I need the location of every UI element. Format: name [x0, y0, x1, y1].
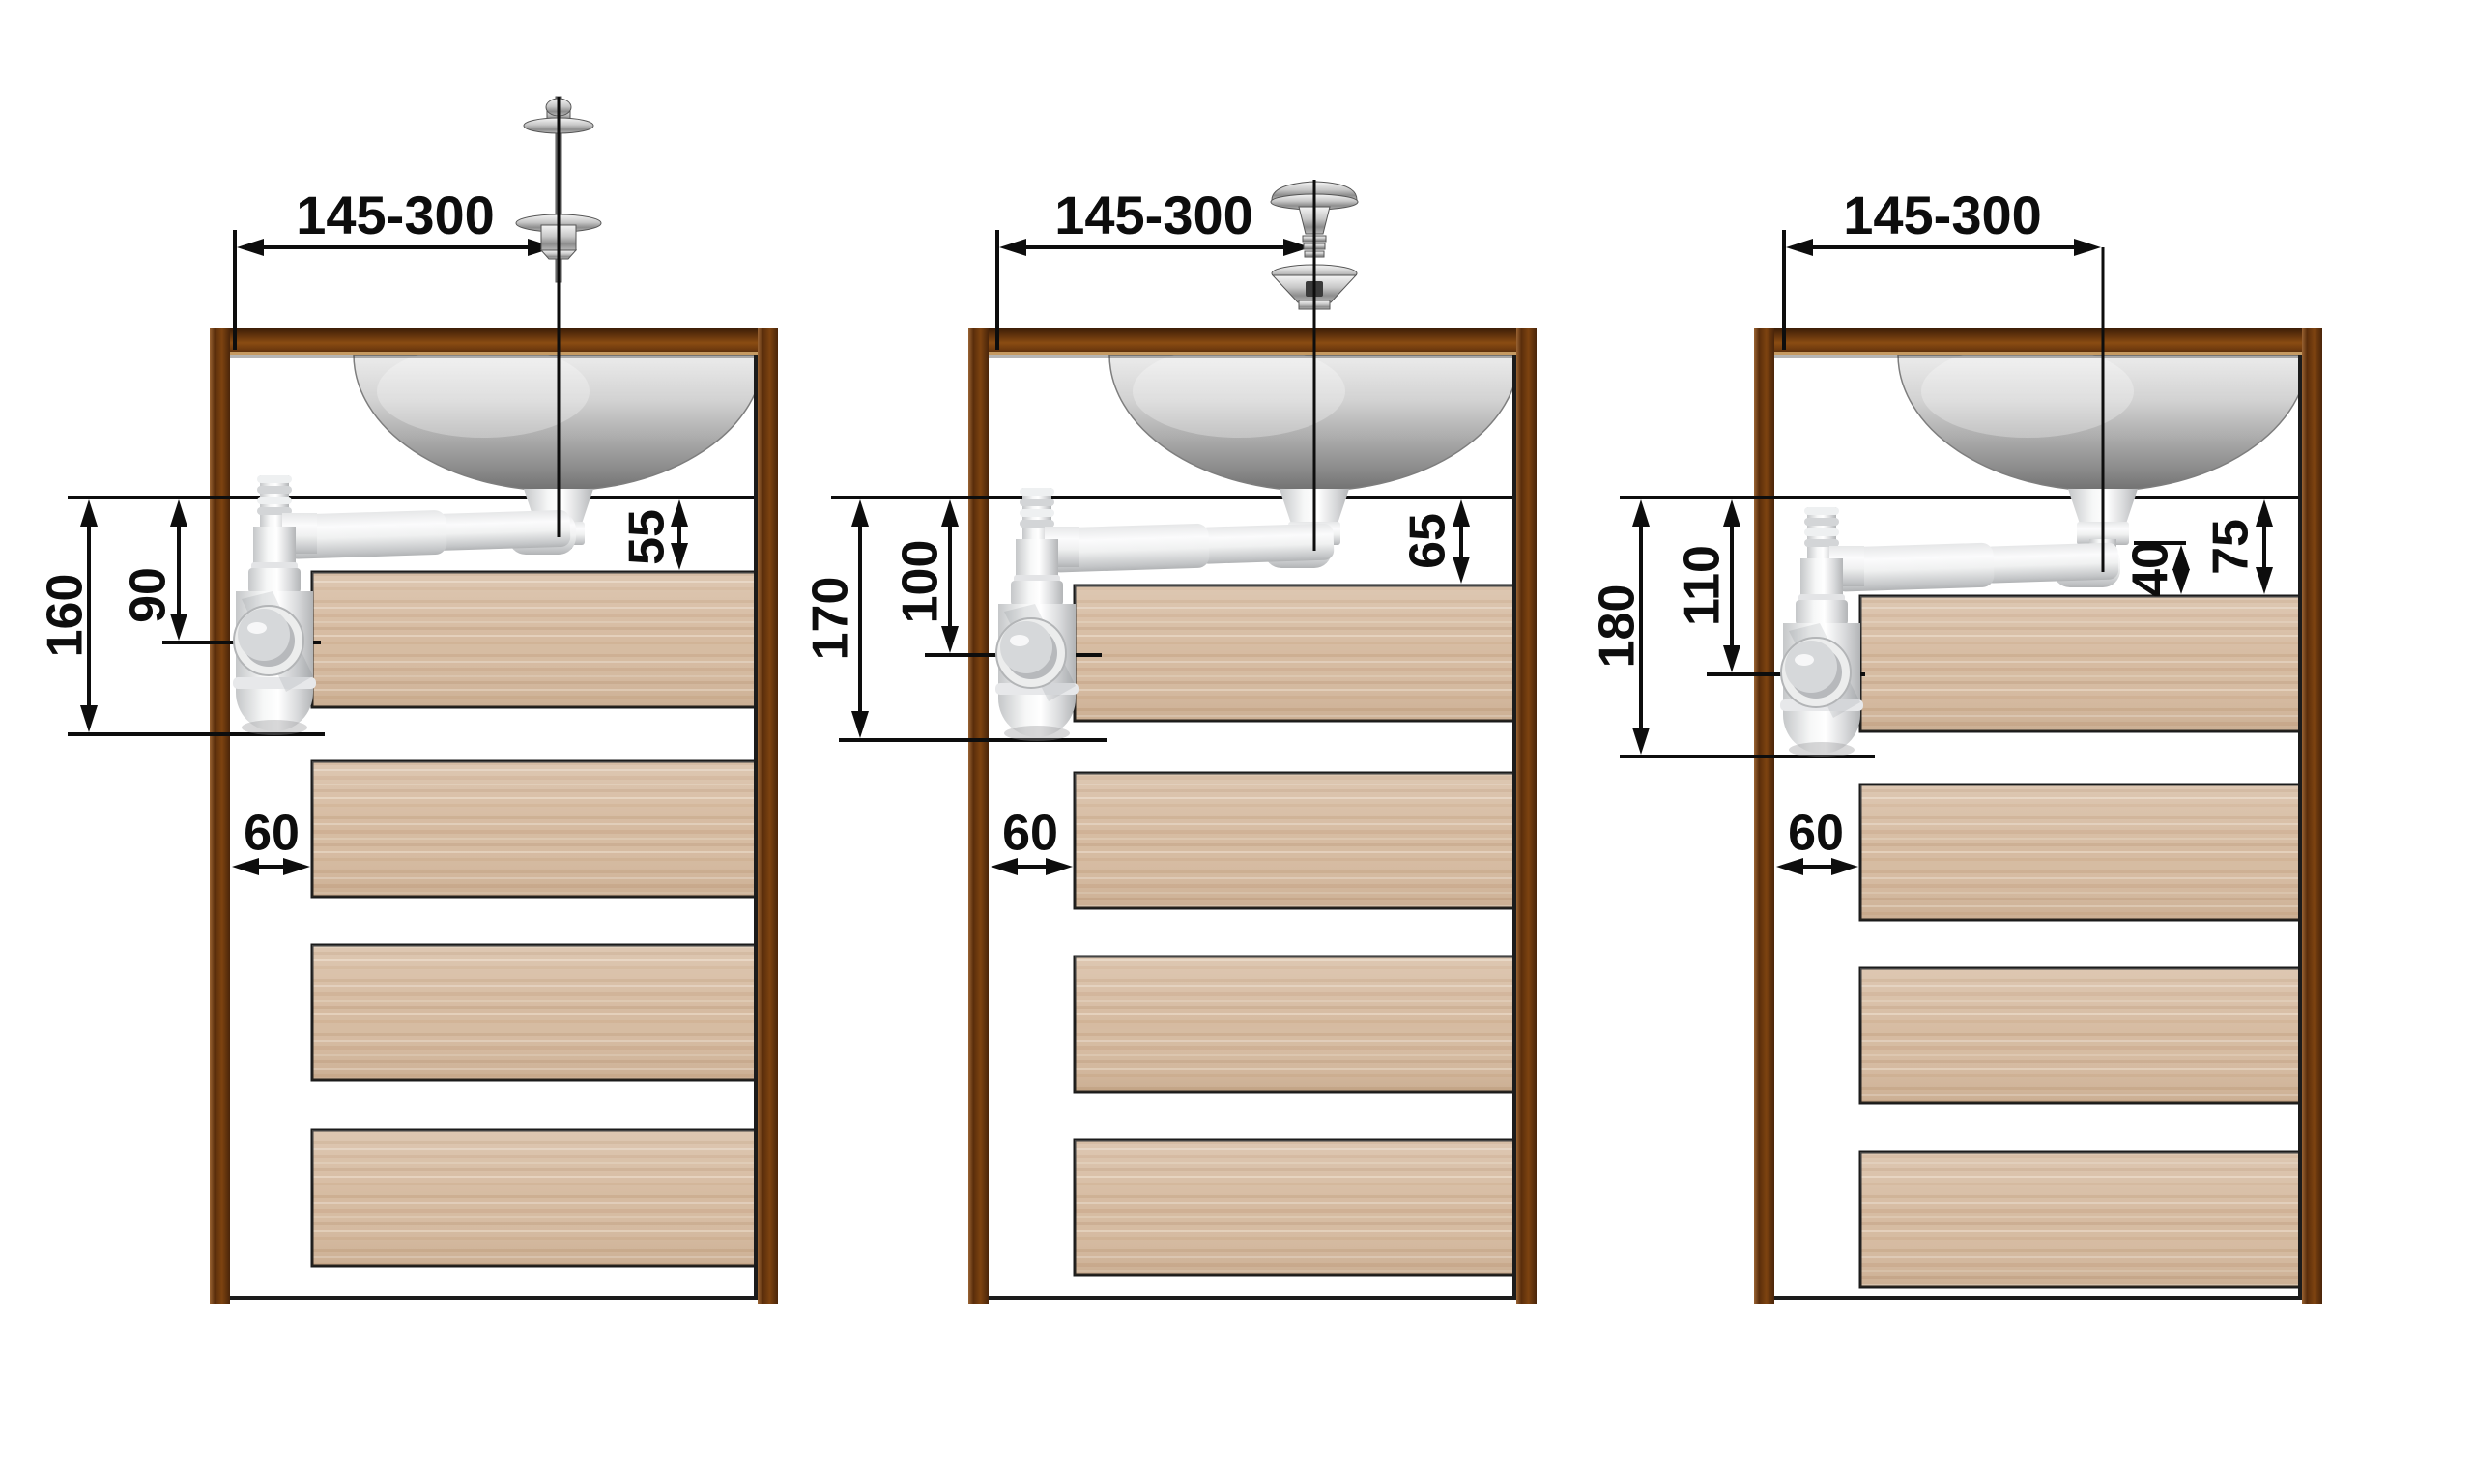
cabinet-left-side — [968, 328, 989, 1304]
dimension-trap-bottom-label: 160 — [38, 574, 94, 658]
countertop — [210, 328, 778, 355]
cabinet-bottom-edge — [230, 1296, 758, 1300]
dimension-shelf-label: 75 — [2203, 519, 2259, 575]
cabinet-right-side — [758, 328, 778, 1304]
inner-right-edge — [1512, 355, 1516, 1298]
dimension-trap-outlet-label: 90 — [121, 567, 177, 623]
compression-nut — [1011, 581, 1063, 606]
dimension-range-label: 145-300 — [1843, 185, 2042, 245]
technical-diagram: 145-300 160 90 55 60 — [0, 0, 2474, 1484]
dimension-shelf-label: 65 — [1400, 513, 1456, 569]
dimension-range-label: 145-300 — [1054, 185, 1253, 245]
dimension-wall-offset-label: 60 — [244, 806, 300, 862]
dimension-trap-bottom-label: 170 — [803, 577, 859, 661]
cabinet-right-side — [1516, 328, 1537, 1304]
drawer-2 — [312, 761, 756, 897]
drawer-3 — [312, 945, 756, 1080]
cabinet-right-side — [2302, 328, 2322, 1304]
drawer-3 — [1860, 968, 2300, 1103]
drawer-1 — [312, 572, 756, 707]
drawer-1 — [1860, 596, 2300, 731]
inner-right-edge — [2298, 355, 2302, 1298]
compression-nut — [1796, 600, 1848, 625]
drawer-3 — [1075, 956, 1514, 1092]
dimension-trap-outlet-label: 110 — [1675, 545, 1731, 626]
dimension-wall-offset-label: 60 — [1788, 806, 1844, 862]
drawer-4 — [1075, 1140, 1514, 1275]
dimension-wall-offset-label: 60 — [1002, 806, 1058, 862]
drawer-2 — [1860, 785, 2300, 920]
countertop-edge — [210, 352, 778, 355]
drawer-4 — [312, 1130, 756, 1266]
cabinet-bottom-edge — [989, 1296, 1516, 1300]
cabinet-left-side — [1754, 328, 1774, 1304]
dimension-range-label: 145-300 — [296, 185, 495, 245]
dimension-shelf-label: 55 — [619, 509, 676, 565]
dimension-pipe-shelf-label: 40 — [2123, 541, 2179, 597]
drawer-2 — [1075, 773, 1514, 908]
inner-right-edge — [754, 355, 758, 1298]
cabinet-left-side — [210, 328, 230, 1304]
drawer-1 — [1075, 585, 1514, 721]
cabinet-bottom-edge — [1774, 1296, 2302, 1300]
dimension-trap-outlet-label: 100 — [893, 540, 949, 624]
dimension-trap-bottom-label: 180 — [1590, 585, 1646, 669]
drawer-4 — [1860, 1152, 2300, 1287]
compression-nut — [248, 568, 301, 593]
